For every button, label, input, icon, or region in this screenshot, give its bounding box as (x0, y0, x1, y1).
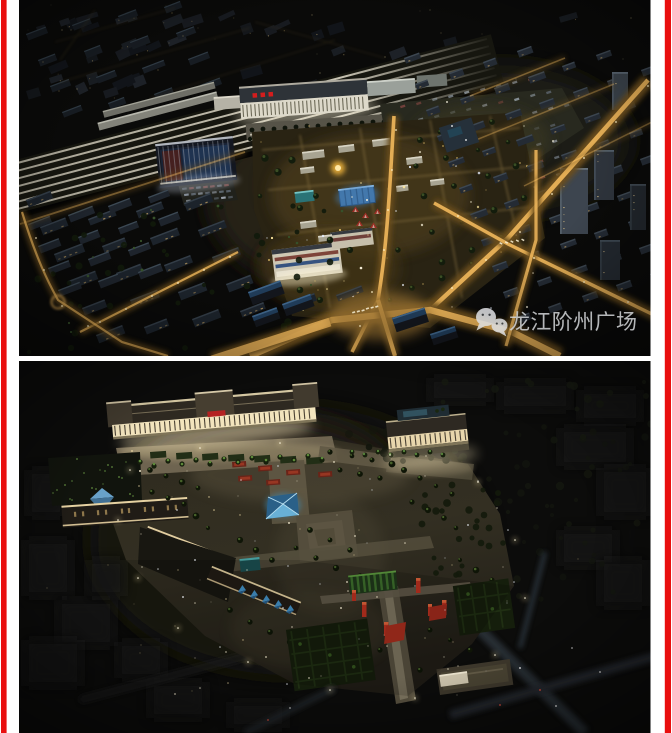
svg-text:龙江阶州广场: 龙江阶州广场 (509, 311, 637, 334)
